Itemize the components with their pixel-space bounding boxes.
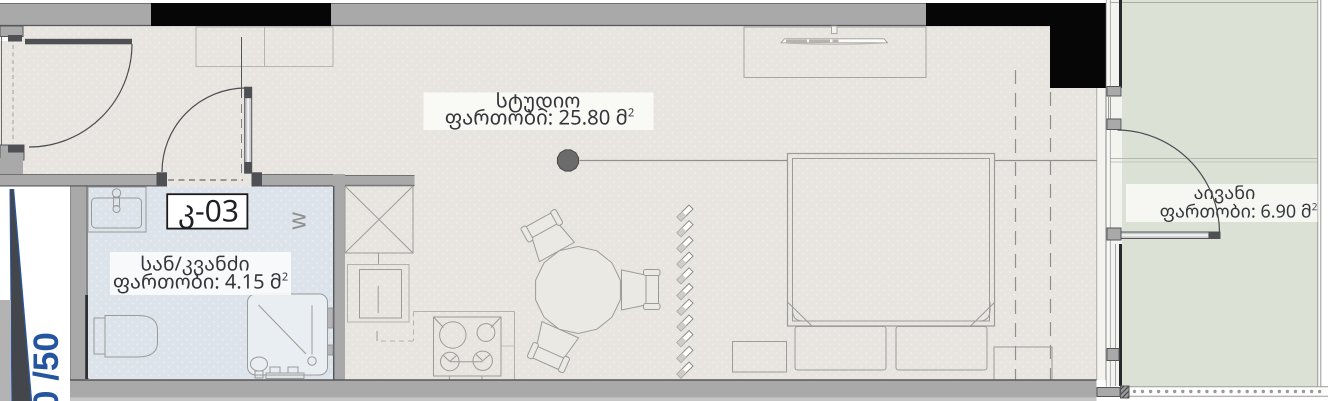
svg-text:w: w (285, 212, 312, 231)
svg-text:0 /50: 0 /50 (27, 332, 66, 401)
